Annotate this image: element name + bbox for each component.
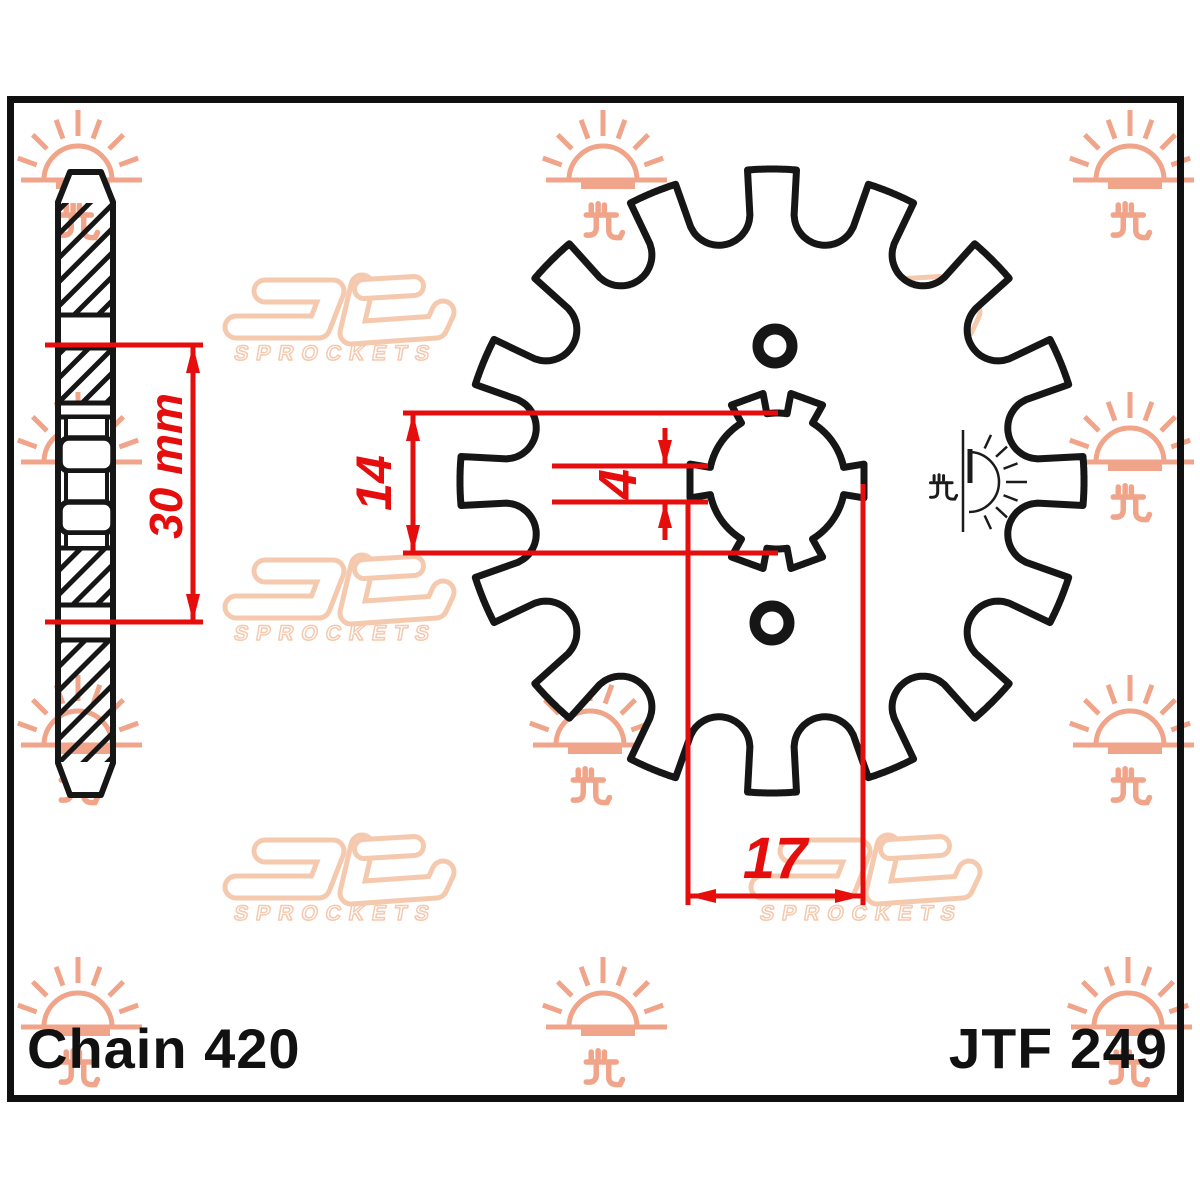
sun-watermark-icon (1070, 675, 1194, 803)
sun-watermark-icon (1070, 110, 1194, 238)
dim-bore-width: 17 (743, 826, 810, 891)
dim-groove-width: 4 (588, 469, 648, 500)
jt-mark-glyph (1113, 769, 1149, 803)
sprocket-side-view (56, 172, 115, 795)
jt-mark-glyph (586, 1051, 622, 1085)
jt-mark-glyph (1113, 486, 1149, 520)
logo-sprockets-text: SPROCKETS (232, 902, 439, 925)
logo-sprockets-text: SPROCKETS (232, 342, 439, 365)
logo-sprockets-text: SPROCKETS (758, 902, 965, 925)
chain-size-label: Chain 420 (27, 1017, 301, 1080)
dim-hub-width: 30 mm (140, 393, 192, 539)
sun-watermark-icon (1070, 392, 1194, 520)
jt-sprockets-logo-watermark: SPROCKETS (232, 286, 443, 365)
dim-bore-height: 14 (346, 455, 402, 511)
technical-drawing-page: SPROCKETSSPROCKETSSPROCKETSSPROCKETSSPRO… (0, 0, 1200, 1200)
jt-mark-glyph (1113, 204, 1149, 238)
logo-sprockets-text: SPROCKETS (232, 622, 439, 645)
part-number-label: JTF 249 (949, 1017, 1168, 1081)
sun-watermark-icon (543, 957, 667, 1085)
sprocket-diagram: SPROCKETSSPROCKETSSPROCKETSSPROCKETSSPRO… (0, 0, 1200, 1200)
jt-sprockets-logo-watermark: SPROCKETS (232, 846, 443, 925)
jt-sprockets-logo-watermark: SPROCKETS (232, 566, 443, 645)
jt-mark-glyph (586, 204, 622, 238)
sprocket-front-view (460, 169, 1084, 793)
jt-mark-glyph (573, 769, 609, 803)
side-hub-splines (60, 417, 113, 548)
